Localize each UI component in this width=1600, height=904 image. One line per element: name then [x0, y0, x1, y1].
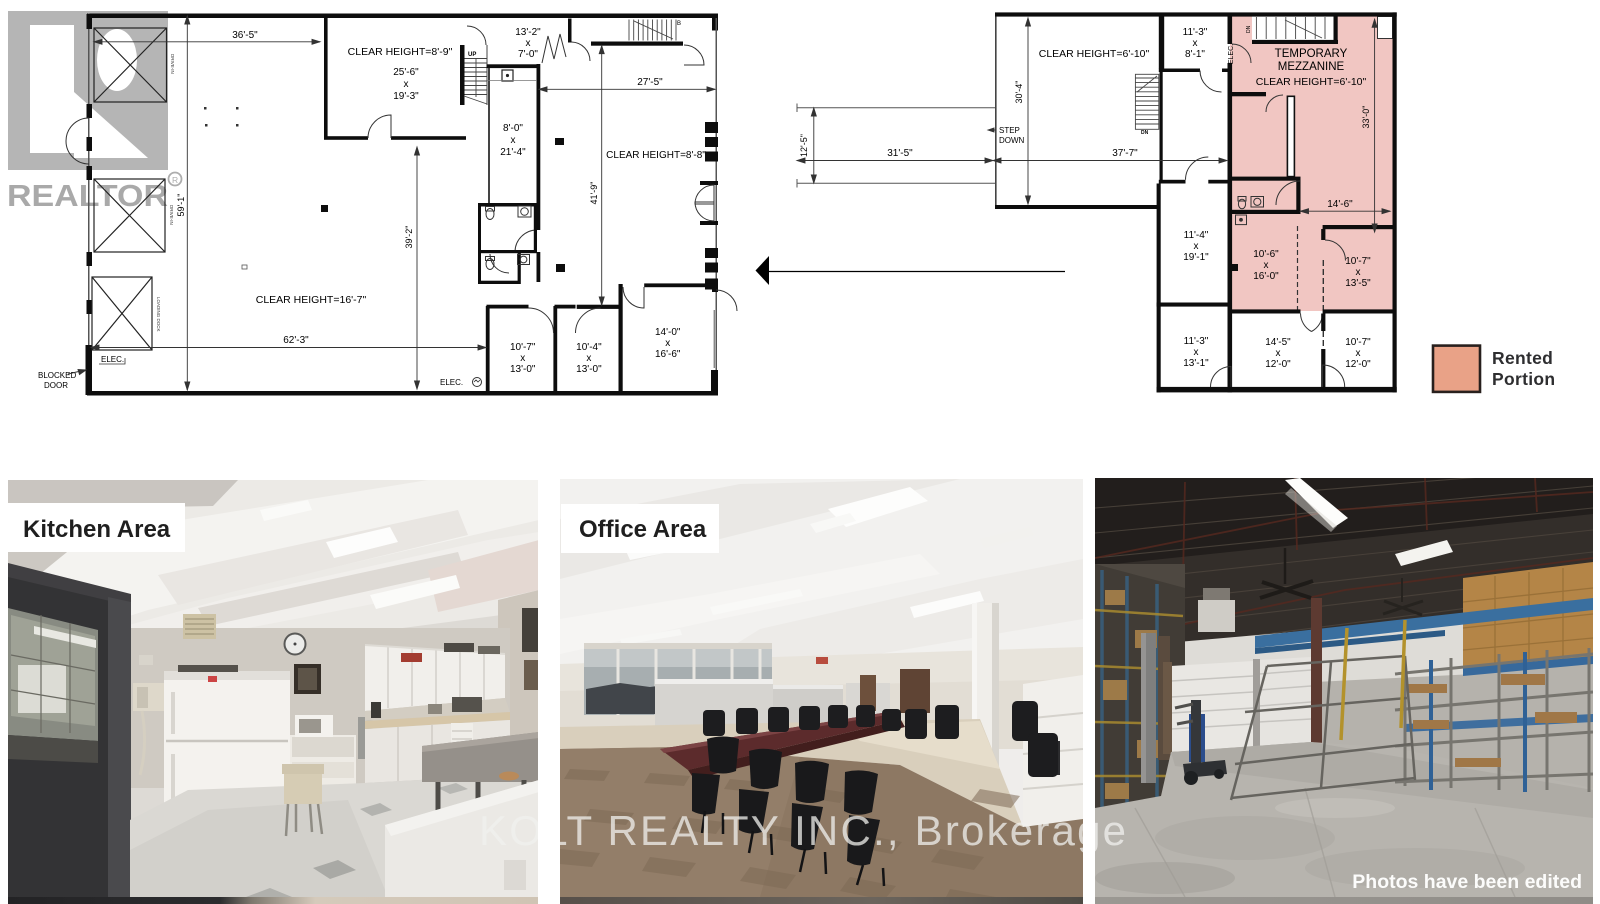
svg-text:DRIVE-IN: DRIVE-IN	[170, 54, 175, 74]
svg-text:x: x	[1356, 267, 1361, 278]
svg-text:x: x	[1194, 241, 1199, 252]
svg-text:x: x	[1193, 38, 1198, 49]
svg-text:DOWN: DOWN	[999, 136, 1025, 145]
svg-text:x: x	[665, 338, 670, 349]
svg-text:DN: DN	[1246, 25, 1252, 33]
svg-text:x: x	[404, 79, 409, 90]
svg-text:x: x	[1264, 260, 1269, 271]
svg-text:41'-9": 41'-9"	[589, 182, 599, 205]
svg-text:x: x	[520, 353, 525, 364]
svg-text:DN: DN	[1141, 130, 1149, 136]
svg-text:11'-4": 11'-4"	[1184, 230, 1209, 241]
svg-text:TEMPORARY: TEMPORARY	[1275, 48, 1348, 60]
svg-text:25'-6": 25'-6"	[393, 67, 419, 78]
svg-text:R: R	[172, 175, 178, 185]
svg-text:UP: UP	[468, 52, 476, 58]
svg-text:x: x	[1276, 348, 1281, 359]
svg-text:DRIVE-IN: DRIVE-IN	[169, 205, 174, 225]
svg-text:Rented: Rented	[1492, 348, 1553, 368]
svg-text:10'-7": 10'-7"	[1345, 337, 1371, 348]
svg-text:CLEAR HEIGHT=16'-7": CLEAR HEIGHT=16'-7"	[256, 294, 367, 306]
svg-text:10'-7": 10'-7"	[510, 342, 536, 353]
svg-text:13'-2": 13'-2"	[515, 27, 541, 38]
svg-text:ELEC.: ELEC.	[1228, 44, 1235, 64]
svg-text:14'-0": 14'-0"	[655, 327, 681, 338]
svg-text:16'-0": 16'-0"	[1253, 271, 1279, 282]
svg-text:DOOR: DOOR	[44, 381, 68, 390]
svg-text:CLEAR HEIGHT=8'-8": CLEAR HEIGHT=8'-8"	[606, 150, 706, 161]
svg-text:10'-6": 10'-6"	[1253, 249, 1279, 260]
svg-text:11'-3": 11'-3"	[1184, 336, 1209, 347]
svg-text:10'-7": 10'-7"	[1345, 256, 1371, 267]
svg-text:MEZZANINE: MEZZANINE	[1278, 61, 1345, 73]
svg-text:62'-3": 62'-3"	[283, 335, 309, 346]
svg-text:19'-1": 19'-1"	[1183, 252, 1209, 263]
svg-text:x: x	[526, 38, 531, 49]
svg-text:10'-4": 10'-4"	[576, 342, 602, 353]
svg-text:8'-0": 8'-0"	[503, 123, 523, 134]
svg-text:BLOCKED: BLOCKED	[38, 371, 76, 380]
svg-text:x: x	[1194, 347, 1199, 358]
svg-text:x: x	[1356, 348, 1361, 359]
svg-text:Portion: Portion	[1492, 369, 1555, 389]
svg-text:Kitchen Area: Kitchen Area	[23, 516, 171, 543]
svg-text:11'-3": 11'-3"	[1183, 27, 1208, 38]
svg-text:19'-3": 19'-3"	[393, 91, 419, 102]
svg-text:Office Area: Office Area	[579, 516, 707, 543]
svg-text:16'-6": 16'-6"	[655, 349, 681, 360]
svg-text:33'-0": 33'-0"	[1361, 106, 1371, 129]
svg-text:7'-0": 7'-0"	[518, 49, 538, 60]
svg-text:STEP: STEP	[999, 126, 1020, 135]
svg-text:37'-7": 37'-7"	[1112, 148, 1138, 159]
svg-text:27'-5": 27'-5"	[637, 77, 663, 88]
svg-text:39'-2": 39'-2"	[404, 226, 414, 249]
svg-text:36'-5": 36'-5"	[232, 30, 258, 41]
svg-text:14'-6": 14'-6"	[1327, 199, 1353, 210]
svg-text:31'-5": 31'-5"	[887, 148, 913, 159]
svg-text:ELEC.: ELEC.	[440, 378, 463, 387]
svg-text:13'-0": 13'-0"	[510, 364, 536, 375]
svg-text:CLEAR HEIGHT=8'-9": CLEAR HEIGHT=8'-9"	[348, 46, 453, 58]
svg-text:Photos have been edited: Photos have been edited	[1352, 871, 1582, 893]
svg-text:x: x	[586, 353, 591, 364]
svg-text:30'-4": 30'-4"	[1014, 81, 1024, 104]
svg-text:CLEAR HEIGHT=6'-10": CLEAR HEIGHT=6'-10"	[1039, 48, 1150, 60]
svg-text:CLEAR HEIGHT=6'-10": CLEAR HEIGHT=6'-10"	[1256, 76, 1367, 88]
svg-text:12'-0": 12'-0"	[1345, 359, 1371, 370]
svg-text:14'-5": 14'-5"	[1265, 337, 1291, 348]
svg-text:12'-5": 12'-5"	[799, 134, 809, 157]
svg-text:B: B	[677, 21, 681, 27]
svg-text:13'-5": 13'-5"	[1345, 278, 1371, 289]
svg-text:LOADING DOCK: LOADING DOCK	[156, 297, 161, 332]
svg-text:x: x	[511, 135, 516, 146]
svg-text:21'-4": 21'-4"	[500, 147, 526, 158]
svg-text:13'-1": 13'-1"	[1183, 358, 1209, 369]
svg-text:8'-1": 8'-1"	[1185, 49, 1205, 60]
svg-text:13'-0": 13'-0"	[576, 364, 602, 375]
svg-text:ELEC.: ELEC.	[101, 355, 124, 364]
svg-text:12'-0": 12'-0"	[1265, 359, 1291, 370]
svg-text:REALTOR: REALTOR	[7, 178, 168, 213]
svg-text:59'-1": 59'-1"	[176, 194, 186, 217]
